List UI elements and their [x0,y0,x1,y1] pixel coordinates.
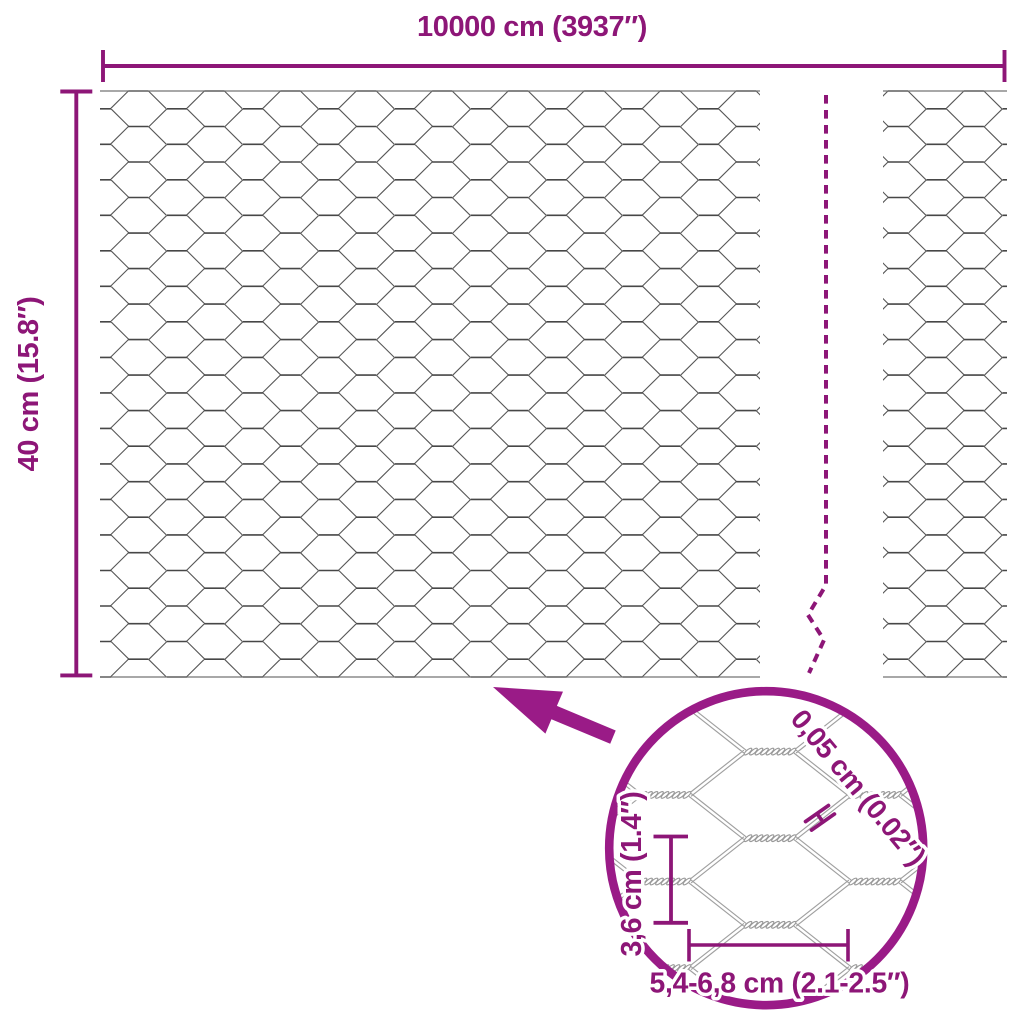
svg-text:3,6 cm (1.4″): 3,6 cm (1.4″) [616,792,648,957]
svg-text:10000 cm (3937″): 10000 cm (3937″) [417,11,647,43]
svg-text:40 cm (15.8″): 40 cm (15.8″) [13,297,45,472]
svg-text:5,4-6,8 cm (2.1-2.5″): 5,4-6,8 cm (2.1-2.5″) [650,966,910,998]
